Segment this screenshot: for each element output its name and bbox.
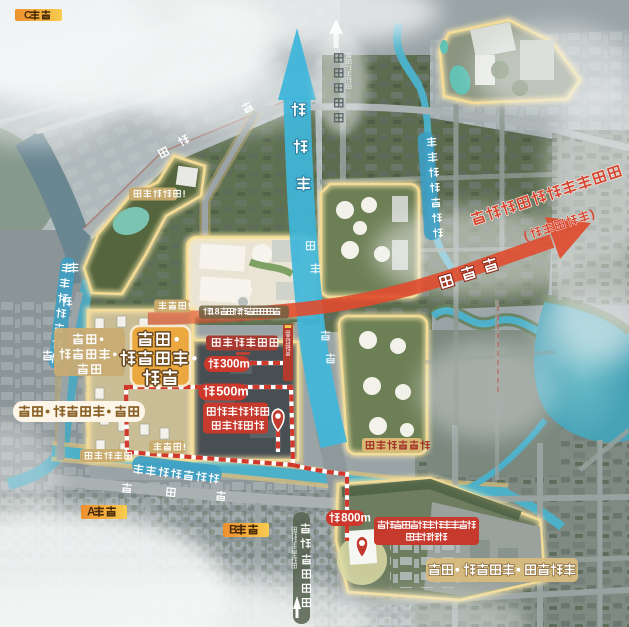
svg-text:C: C [24,10,32,22]
svg-text:!: ! [183,442,186,453]
svg-text:!: ! [183,189,186,200]
svg-text:!: ! [188,301,191,312]
svg-text:800m: 800m [341,511,371,524]
svg-text:500m: 500m [216,383,249,398]
svg-text:B: B [229,523,237,536]
svg-text:300m: 300m [220,357,250,370]
svg-text:18: 18 [210,306,220,316]
